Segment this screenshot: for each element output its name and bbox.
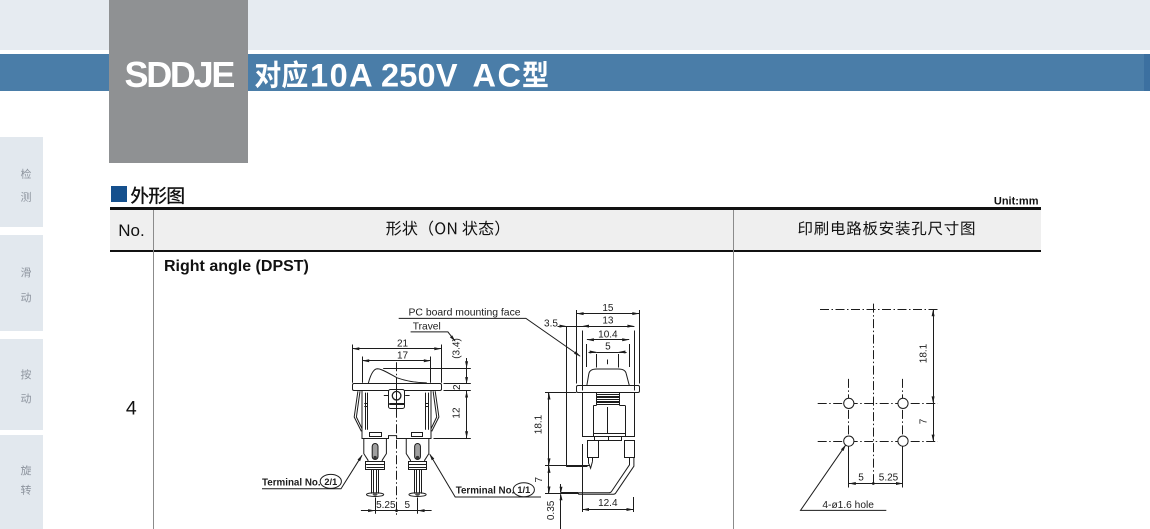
svg-text:10.4: 10.4 <box>598 329 618 340</box>
svg-text:(3.4): (3.4) <box>451 338 462 359</box>
svg-text:15: 15 <box>602 303 614 314</box>
svg-text:18.1: 18.1 <box>534 414 545 434</box>
svg-text:Terminal No.: Terminal No. <box>262 477 321 488</box>
svg-text:17: 17 <box>397 350 409 361</box>
svg-text:4-ø1.6 hole: 4-ø1.6 hole <box>822 500 874 511</box>
svg-text:7: 7 <box>534 476 545 482</box>
svg-text:2/1: 2/1 <box>324 477 337 487</box>
svg-text:3.5: 3.5 <box>544 318 558 329</box>
svg-text:5.25: 5.25 <box>376 500 396 511</box>
svg-text:5: 5 <box>405 500 411 511</box>
svg-text:12.4: 12.4 <box>598 498 618 509</box>
svg-text:18.1: 18.1 <box>919 343 930 363</box>
svg-text:5: 5 <box>605 341 611 352</box>
svg-text:SDDJE: SDDJE <box>125 54 235 95</box>
svg-text:PC board mounting face: PC board mounting face <box>409 308 521 319</box>
svg-text:Terminal No.: Terminal No. <box>456 486 515 497</box>
svg-text:2: 2 <box>452 384 463 390</box>
svg-text:21: 21 <box>397 338 409 349</box>
svg-text:13: 13 <box>602 316 614 327</box>
svg-text:Travel: Travel <box>413 321 441 332</box>
svg-text:7: 7 <box>919 418 930 424</box>
svg-text:12: 12 <box>452 407 463 419</box>
svg-text:5: 5 <box>858 473 864 484</box>
svg-text:1/1: 1/1 <box>517 485 530 495</box>
svg-text:250V: 250V <box>381 57 458 93</box>
svg-text:10A: 10A <box>310 57 374 93</box>
svg-text:0.35: 0.35 <box>546 500 557 520</box>
svg-text:5.25: 5.25 <box>879 473 899 484</box>
svg-text:AC: AC <box>473 57 523 93</box>
